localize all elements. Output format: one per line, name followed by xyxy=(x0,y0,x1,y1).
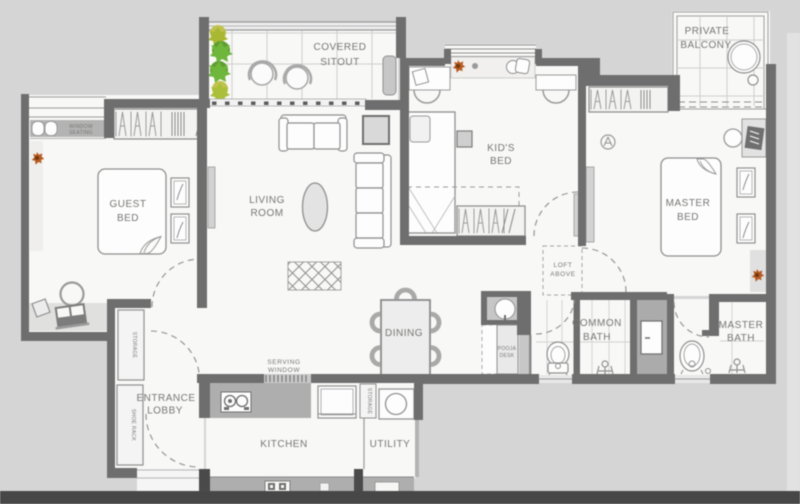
svg-text:SHOE RACK: SHOE RACK xyxy=(130,409,136,442)
svg-text:BATH: BATH xyxy=(727,333,755,344)
svg-text:GUEST: GUEST xyxy=(110,199,147,210)
svg-text:MASTER: MASTER xyxy=(666,198,711,209)
svg-text:DESK: DESK xyxy=(500,353,515,359)
svg-text:LIVING: LIVING xyxy=(249,195,285,206)
svg-text:ROOM: ROOM xyxy=(250,208,283,219)
svg-text:STORAGE: STORAGE xyxy=(366,388,372,415)
svg-text:KITCHEN: KITCHEN xyxy=(260,439,307,450)
svg-text:WINDOW: WINDOW xyxy=(268,367,300,374)
svg-text:ABOVE: ABOVE xyxy=(550,271,575,278)
svg-text:LOFT: LOFT xyxy=(553,262,572,269)
svg-text:STORAGE: STORAGE xyxy=(131,332,137,359)
svg-text:BED: BED xyxy=(117,213,139,224)
svg-text:SITOUT: SITOUT xyxy=(320,57,359,68)
svg-text:COVERED: COVERED xyxy=(314,42,367,53)
svg-text:ENTRANCE: ENTRANCE xyxy=(136,393,195,404)
svg-text:BATH: BATH xyxy=(583,332,611,343)
svg-text:BALCONY: BALCONY xyxy=(680,40,731,51)
svg-text:DINING: DINING xyxy=(385,328,423,339)
svg-text:BED: BED xyxy=(490,156,512,167)
svg-text:BED: BED xyxy=(677,212,699,223)
svg-text:SEATING: SEATING xyxy=(69,130,93,136)
svg-text:MASTER: MASTER xyxy=(719,320,764,331)
svg-text:UTILITY: UTILITY xyxy=(370,439,411,450)
svg-text:SERVING: SERVING xyxy=(267,359,300,366)
svg-text:KID'S: KID'S xyxy=(487,143,515,154)
svg-text:POOJA: POOJA xyxy=(498,346,517,352)
svg-text:PRIVATE: PRIVATE xyxy=(685,26,730,37)
svg-text:LOBBY: LOBBY xyxy=(147,406,183,417)
